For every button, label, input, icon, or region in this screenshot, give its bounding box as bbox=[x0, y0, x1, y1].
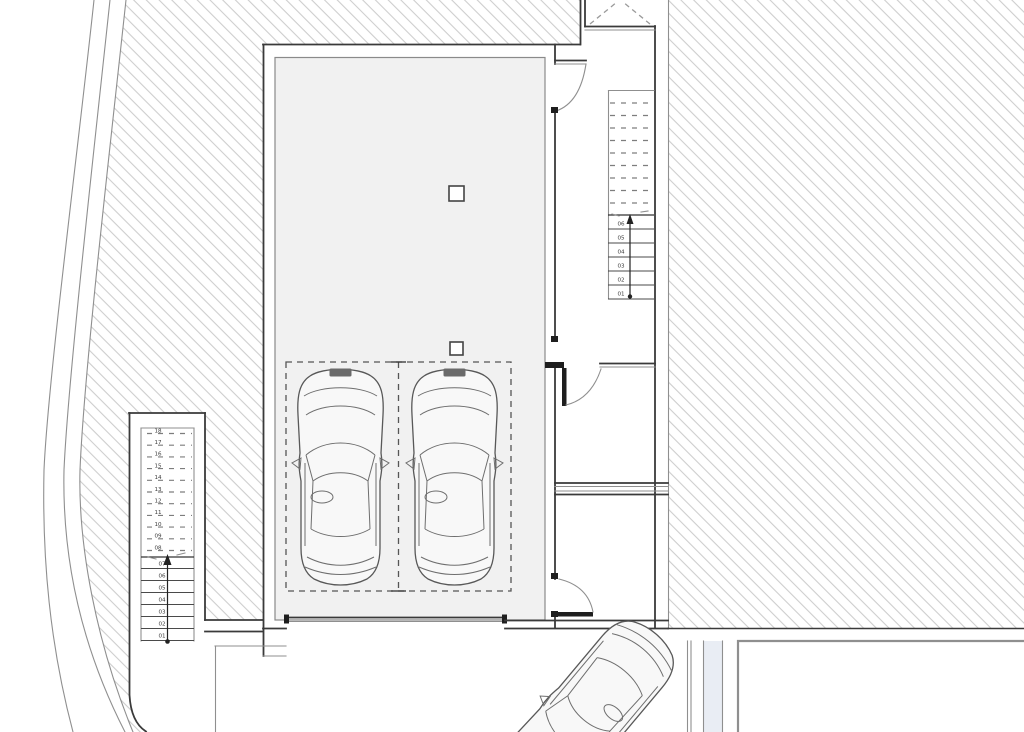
stair-step-number: 10 bbox=[154, 522, 162, 528]
stair-step-number: 01 bbox=[158, 634, 166, 640]
stair-step-number: 14 bbox=[154, 475, 162, 481]
left-stair-direction-arrow bbox=[148, 553, 185, 644]
service-core: 060504030201 bbox=[545, 0, 668, 628]
stair-step-number: 04 bbox=[158, 598, 166, 604]
stair-step-number: 17 bbox=[154, 440, 162, 446]
stair-step-number: 04 bbox=[617, 250, 625, 256]
parked-car-left bbox=[292, 369, 389, 586]
parked-car-right bbox=[406, 369, 503, 586]
stair-step-number: 01 bbox=[617, 292, 625, 298]
lower-right-structures bbox=[688, 641, 1024, 732]
door-top bbox=[551, 61, 586, 114]
stair-step-number: 15 bbox=[154, 463, 162, 469]
stair-step-number: 08 bbox=[154, 545, 162, 551]
elevator-shaft bbox=[585, 0, 655, 30]
entering-car bbox=[479, 603, 692, 732]
column-icon bbox=[450, 342, 463, 355]
stair-step-number: 03 bbox=[158, 610, 166, 616]
left-stair-step-numbers: 181716151413121110090807060504030201 bbox=[154, 428, 166, 639]
door-bottom bbox=[551, 573, 593, 617]
floor-plan-canvas: 181716151413121110090807060504030201 bbox=[0, 0, 1024, 732]
stair-step-number: 02 bbox=[617, 278, 624, 284]
garden-room-border bbox=[738, 641, 1024, 732]
stair-step-number: 11 bbox=[154, 510, 162, 516]
stair-step-number: 16 bbox=[154, 452, 162, 458]
terrain-hatch-right bbox=[668, 0, 1024, 628]
partition-walls bbox=[555, 483, 668, 495]
door-middle bbox=[545, 336, 655, 406]
stair-step-number: 13 bbox=[154, 487, 162, 493]
column-icon bbox=[449, 186, 464, 201]
stair-step-number: 02 bbox=[158, 622, 165, 628]
right-staircase: 060504030201 bbox=[608, 91, 654, 300]
stair-step-number: 05 bbox=[617, 236, 625, 242]
stair-step-number: 03 bbox=[617, 264, 625, 270]
walkway bbox=[205, 632, 286, 732]
stair-step-number: 05 bbox=[158, 586, 166, 592]
stair-step-number: 06 bbox=[617, 222, 625, 228]
stair-step-number: 09 bbox=[154, 534, 162, 540]
glass-strip bbox=[703, 641, 723, 732]
stair-step-number: 18 bbox=[154, 428, 162, 434]
right-stair-step-numbers: 060504030201 bbox=[617, 222, 625, 298]
right-stair-solid-treads bbox=[608, 229, 654, 299]
stair-step-number: 06 bbox=[158, 574, 166, 580]
stair-step-number: 12 bbox=[154, 499, 161, 505]
right-stair-dashed-treads bbox=[610, 103, 652, 203]
